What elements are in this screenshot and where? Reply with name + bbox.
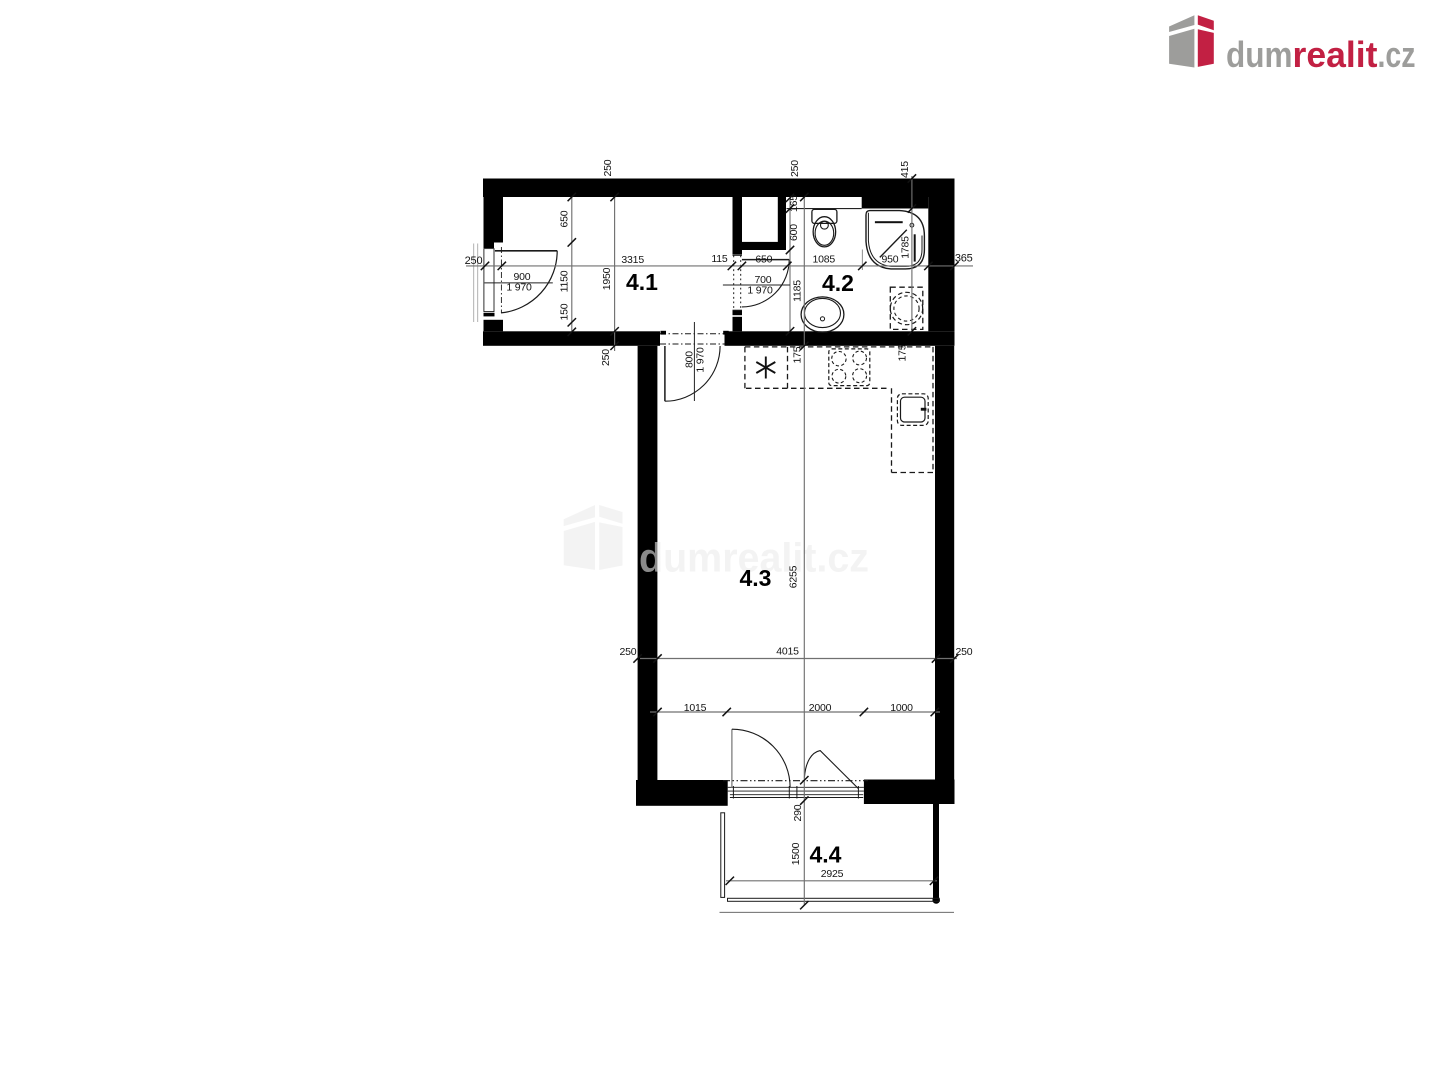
svg-text:1 970: 1 970 xyxy=(694,347,706,373)
svg-text:1015: 1015 xyxy=(684,702,707,714)
svg-text:4.1: 4.1 xyxy=(626,269,658,295)
svg-text:365: 365 xyxy=(955,253,973,265)
svg-text:250: 250 xyxy=(600,349,612,366)
svg-text:415: 415 xyxy=(899,161,911,178)
svg-text:250: 250 xyxy=(465,255,483,267)
svg-text:290: 290 xyxy=(792,804,804,821)
svg-text:1 970: 1 970 xyxy=(506,282,532,294)
svg-text:250: 250 xyxy=(789,160,801,177)
svg-text:1185: 1185 xyxy=(792,280,804,302)
svg-text:1950: 1950 xyxy=(601,267,613,290)
svg-text:1150: 1150 xyxy=(558,270,570,292)
svg-text:175: 175 xyxy=(896,344,908,361)
svg-text:4015: 4015 xyxy=(776,646,799,658)
svg-text:650: 650 xyxy=(755,254,772,266)
svg-text:2925: 2925 xyxy=(821,868,844,880)
svg-text:165: 165 xyxy=(788,195,800,212)
svg-text:650: 650 xyxy=(558,210,570,227)
svg-text:6255: 6255 xyxy=(787,565,799,588)
svg-text:175: 175 xyxy=(791,346,803,363)
svg-text:4.3: 4.3 xyxy=(740,565,772,591)
svg-text:250: 250 xyxy=(956,646,973,658)
svg-text:.cz: .cz xyxy=(1378,34,1416,75)
svg-text:1000: 1000 xyxy=(890,702,913,714)
svg-text:250: 250 xyxy=(620,646,637,658)
svg-text:250: 250 xyxy=(602,159,614,176)
svg-text:950: 950 xyxy=(882,254,899,266)
svg-text:115: 115 xyxy=(711,253,727,265)
svg-text:1 970: 1 970 xyxy=(747,284,773,296)
svg-text:realit: realit xyxy=(1293,34,1378,75)
svg-text:3315: 3315 xyxy=(621,254,644,266)
svg-text:1500: 1500 xyxy=(790,842,802,865)
svg-text:dum: dum xyxy=(1226,34,1293,75)
svg-text:4.4: 4.4 xyxy=(810,842,842,868)
svg-text:1785: 1785 xyxy=(899,236,911,259)
svg-text:4.2: 4.2 xyxy=(822,270,854,296)
svg-text:1085: 1085 xyxy=(813,254,836,266)
svg-text:150: 150 xyxy=(558,303,570,320)
svg-text:2000: 2000 xyxy=(809,702,832,714)
svg-text:600: 600 xyxy=(788,224,800,241)
